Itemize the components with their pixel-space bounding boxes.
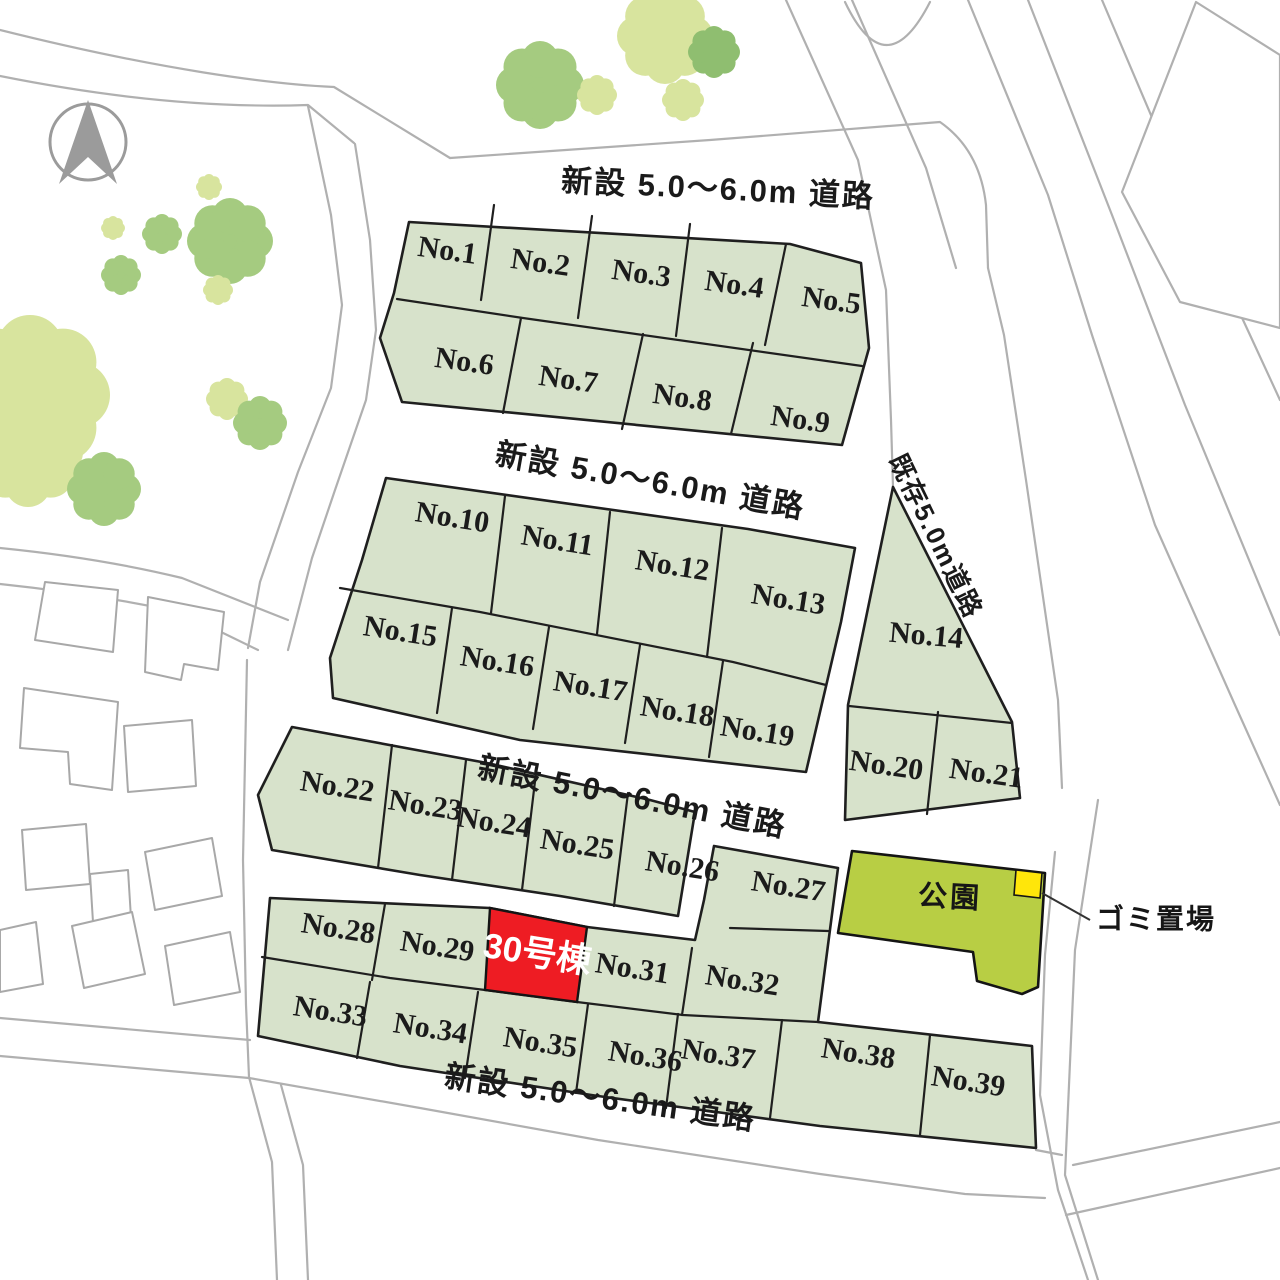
house-outline xyxy=(35,582,118,652)
tree-icon xyxy=(577,75,617,115)
house-outline xyxy=(165,932,240,1005)
tree-icon xyxy=(187,198,273,284)
park-polygon xyxy=(838,851,1045,994)
tree-icon xyxy=(203,275,233,305)
house-outline xyxy=(0,922,43,992)
house-outline xyxy=(145,838,222,910)
tree-icon xyxy=(196,174,222,200)
tree-icon xyxy=(496,41,584,129)
tree-icon xyxy=(662,79,704,121)
road-edge xyxy=(281,1085,308,1280)
garbage-spot xyxy=(1014,870,1042,898)
north-arrow-icon xyxy=(50,100,126,184)
house-outline xyxy=(145,597,224,680)
road-edge xyxy=(1073,1122,1280,1165)
plot-map: No.1No.2No.3No.4No.5No.6No.7No.8No.9No.1… xyxy=(0,0,1280,1280)
garbage-label: ゴミ置場 xyxy=(1096,902,1216,934)
tree-icon xyxy=(688,26,740,78)
house-outline xyxy=(20,688,118,790)
house-outline xyxy=(72,912,145,988)
road-edge xyxy=(0,1018,250,1040)
road-label-top: 新設 5.0〜6.0m 道路 xyxy=(560,163,875,214)
tree-icon xyxy=(67,452,141,526)
road-edge xyxy=(1066,1168,1280,1215)
plot-map-stage: No.1No.2No.3No.4No.5No.6No.7No.8No.9No.1… xyxy=(0,0,1280,1280)
road-edge xyxy=(248,106,342,648)
existing-houses xyxy=(0,582,240,1005)
lot-label-no14: No.14 xyxy=(888,616,965,655)
tree-icon xyxy=(101,216,125,240)
highway-edge xyxy=(852,0,956,268)
ramp-arc xyxy=(845,2,930,45)
tree-icon xyxy=(142,214,182,254)
house-outline xyxy=(22,824,90,890)
house-outline xyxy=(124,720,196,792)
tree-icon xyxy=(233,396,287,450)
tree-icon xyxy=(101,255,141,295)
road-edge xyxy=(1036,1150,1062,1155)
park-label: 公園 xyxy=(917,880,983,915)
white-parcel xyxy=(1122,2,1280,328)
